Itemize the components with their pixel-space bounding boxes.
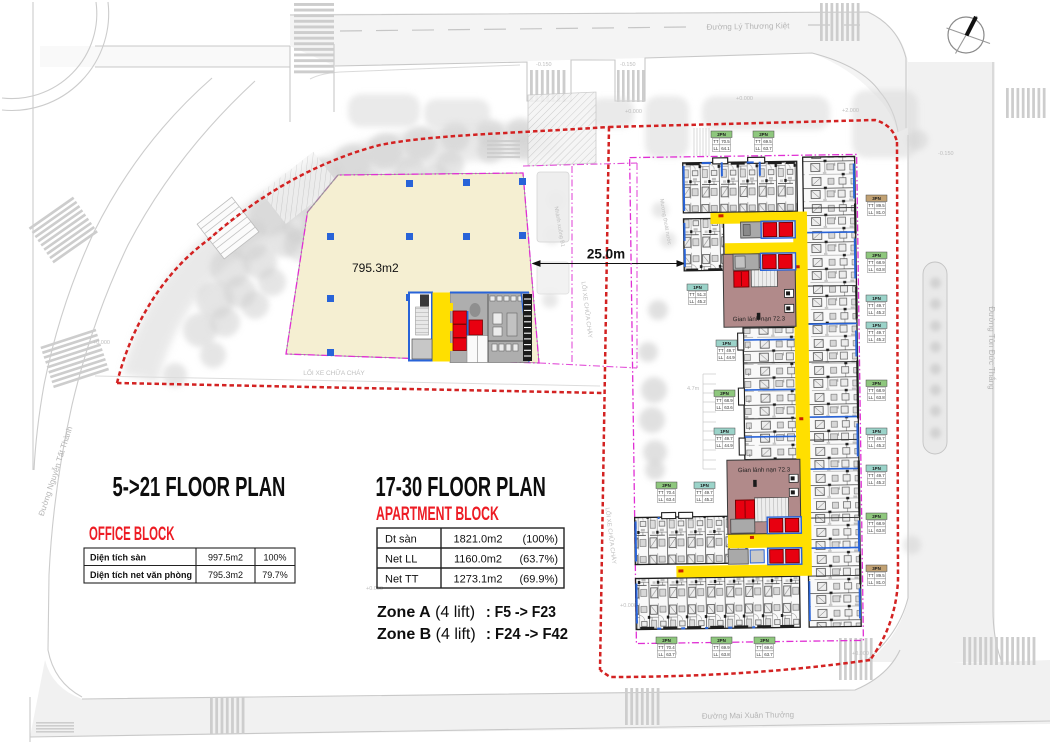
svg-text:LL: LL <box>716 405 721 410</box>
svg-text:70.5: 70.5 <box>721 139 730 144</box>
svg-text:45.2: 45.2 <box>704 497 713 502</box>
svg-text:63.8: 63.8 <box>876 395 885 400</box>
svg-text:63.7: 63.7 <box>764 652 773 657</box>
svg-text:1821.0m2: 1821.0m2 <box>454 534 503 546</box>
svg-text:44.9: 44.9 <box>724 443 733 448</box>
svg-text:TT: TT <box>868 203 874 208</box>
svg-text:3PN: 3PN <box>872 196 881 201</box>
svg-text:Diện tích sàn: Diện tích sàn <box>90 553 146 563</box>
svg-text:1PN: 1PN <box>700 483 709 488</box>
svg-text:1PN: 1PN <box>722 341 731 346</box>
svg-text:44.9: 44.9 <box>726 355 735 360</box>
svg-text:(63.7%): (63.7%) <box>519 554 558 566</box>
svg-text:LL: LL <box>868 267 873 272</box>
svg-text:(100%): (100%) <box>523 534 558 546</box>
svg-text:LL: LL <box>868 210 873 215</box>
svg-text:1PN: 1PN <box>720 429 729 434</box>
svg-text:TT: TT <box>718 348 724 353</box>
svg-text:64.1: 64.1 <box>721 146 730 151</box>
svg-text:68.9: 68.9 <box>876 521 885 526</box>
svg-text:49.7: 49.7 <box>704 490 713 495</box>
svg-text:1PN: 1PN <box>872 296 881 301</box>
svg-text:Zone B (4 lift): F24 -> F42: Zone B (4 lift): F24 -> F42 <box>377 626 568 643</box>
svg-text:89.5: 89.5 <box>876 203 885 208</box>
svg-text:68.9: 68.9 <box>876 388 885 393</box>
svg-text:17-30 FLOOR PLAN: 17-30 FLOOR PLAN <box>376 471 546 502</box>
svg-text:TT: TT <box>755 139 761 144</box>
svg-text:TT: TT <box>658 645 664 650</box>
svg-text:68.9: 68.9 <box>724 398 733 403</box>
svg-text:LL: LL <box>716 443 721 448</box>
svg-text:Gian lánh nạn 72.3: Gian lánh nạn 72.3 <box>733 315 786 323</box>
svg-text:1PN: 1PN <box>872 323 881 328</box>
svg-text:LL: LL <box>868 395 873 400</box>
svg-text:-0.150: -0.150 <box>536 62 552 68</box>
svg-text:2PN: 2PN <box>717 132 726 137</box>
svg-text:TT: TT <box>868 473 874 478</box>
svg-text:TT: TT <box>868 436 874 441</box>
svg-text:79.7%: 79.7% <box>262 570 288 580</box>
svg-text:49.7: 49.7 <box>876 436 885 441</box>
svg-text:TT: TT <box>868 303 874 308</box>
svg-text:997.5m2: 997.5m2 <box>208 553 243 563</box>
svg-text:TT: TT <box>716 398 722 403</box>
svg-text:5->21 FLOOR PLAN: 5->21 FLOOR PLAN <box>113 471 286 502</box>
svg-text:89.5: 89.5 <box>876 573 885 578</box>
svg-text:(69.9%): (69.9%) <box>519 574 558 586</box>
svg-text:63.8: 63.8 <box>876 267 885 272</box>
svg-text:69.5: 69.5 <box>763 139 772 144</box>
svg-text:TT: TT <box>713 645 719 650</box>
svg-text:51.3: 51.3 <box>697 292 706 297</box>
svg-text:45.2: 45.2 <box>876 310 885 315</box>
svg-text:OFFICE BLOCK: OFFICE BLOCK <box>89 524 175 545</box>
svg-text:+0.000: +0.000 <box>366 586 383 592</box>
svg-text:TT: TT <box>868 388 874 393</box>
svg-text:LL: LL <box>658 497 663 502</box>
svg-text:45.2: 45.2 <box>876 480 885 485</box>
svg-text:Zone A (4 lift): F5 -> F23: Zone A (4 lift): F5 -> F23 <box>377 604 556 621</box>
svg-text:+2.000: +2.000 <box>842 108 859 114</box>
svg-text:70.4: 70.4 <box>666 490 675 495</box>
svg-text:45.2: 45.2 <box>876 443 885 448</box>
svg-text:LL: LL <box>868 580 873 585</box>
svg-text:TT: TT <box>658 490 664 495</box>
svg-text:2PN: 2PN <box>872 381 881 386</box>
svg-text:49.7: 49.7 <box>876 303 885 308</box>
svg-text:70.4: 70.4 <box>666 645 675 650</box>
svg-text:LL: LL <box>868 337 873 342</box>
svg-text:TT: TT <box>756 645 762 650</box>
svg-text:Net LL: Net LL <box>385 554 417 566</box>
svg-text:Diện tích net văn phòng: Diện tích net văn phòng <box>90 570 192 580</box>
svg-text:45.2: 45.2 <box>697 299 706 304</box>
svg-text:63.8: 63.8 <box>721 652 730 657</box>
svg-text:2PN: 2PN <box>717 638 726 643</box>
svg-text:49.7: 49.7 <box>876 330 885 335</box>
svg-text:49.7: 49.7 <box>726 348 735 353</box>
svg-text:69.6: 69.6 <box>764 645 773 650</box>
svg-text:Gian lánh nạn 72.3: Gian lánh nạn 72.3 <box>738 466 791 474</box>
svg-text:+0.000: +0.000 <box>736 96 753 102</box>
svg-text:LL: LL <box>689 299 694 304</box>
svg-text:TT: TT <box>713 139 719 144</box>
svg-text:LL: LL <box>868 443 873 448</box>
svg-text:4.7m: 4.7m <box>687 386 700 392</box>
svg-text:63.6: 63.6 <box>724 405 733 410</box>
svg-text:LL: LL <box>868 528 873 533</box>
svg-text:LL: LL <box>755 146 760 151</box>
svg-text:TT: TT <box>689 292 695 297</box>
svg-text:Đường Tôn Đức Thắng: Đường Tôn Đức Thắng <box>987 306 996 389</box>
svg-text:LL: LL <box>713 652 718 657</box>
svg-text:Đường Mai Xuân Thưởng: Đường Mai Xuân Thưởng <box>702 710 794 721</box>
svg-text:LL: LL <box>713 146 718 151</box>
svg-text:TT: TT <box>868 260 874 265</box>
svg-text:49.7: 49.7 <box>876 473 885 478</box>
svg-text:68.9: 68.9 <box>876 260 885 265</box>
svg-text:Net TT: Net TT <box>385 574 419 586</box>
svg-text:63.4: 63.4 <box>666 497 675 502</box>
svg-text:+0.000: +0.000 <box>620 603 637 609</box>
svg-text:81.0: 81.0 <box>876 580 885 585</box>
svg-text:APARTMENT BLOCK: APARTMENT BLOCK <box>376 505 499 525</box>
svg-text:1PN: 1PN <box>693 285 702 290</box>
svg-text:63.8: 63.8 <box>876 528 885 533</box>
svg-text:LL: LL <box>658 652 663 657</box>
svg-text:2PN: 2PN <box>662 483 671 488</box>
svg-text:LL: LL <box>696 497 701 502</box>
svg-text:Dt sàn: Dt sàn <box>385 534 417 546</box>
svg-text:-0.150: -0.150 <box>620 62 636 68</box>
svg-text:-0.150: -0.150 <box>938 151 954 157</box>
svg-text:+0.000: +0.000 <box>93 340 110 346</box>
svg-text:81.0: 81.0 <box>876 210 885 215</box>
svg-text:2PN: 2PN <box>662 638 671 643</box>
svg-text:+0.000: +0.000 <box>852 651 869 657</box>
svg-text:2PN: 2PN <box>759 132 768 137</box>
svg-text:1273.1m2: 1273.1m2 <box>454 574 503 586</box>
svg-text:2PN: 2PN <box>720 391 729 396</box>
svg-text:795.3m2: 795.3m2 <box>208 570 243 580</box>
svg-text:45.2: 45.2 <box>876 337 885 342</box>
svg-text:1PN: 1PN <box>872 429 881 434</box>
svg-text:LL: LL <box>756 652 761 657</box>
svg-text:TT: TT <box>696 490 702 495</box>
svg-text:795.3m2: 795.3m2 <box>352 261 399 275</box>
svg-text:2PN: 2PN <box>872 514 881 519</box>
svg-text:LL: LL <box>718 355 723 360</box>
svg-text:25.0m: 25.0m <box>587 247 625 262</box>
svg-text:49.7: 49.7 <box>724 436 733 441</box>
svg-text:63.7: 63.7 <box>763 146 772 151</box>
svg-text:LL: LL <box>868 310 873 315</box>
svg-text:TT: TT <box>716 436 722 441</box>
svg-text:Đường Lý Thương Kiệt: Đường Lý Thương Kiệt <box>706 21 790 31</box>
svg-text:TT: TT <box>868 573 874 578</box>
svg-text:63.7: 63.7 <box>666 652 675 657</box>
svg-text:100%: 100% <box>263 553 286 563</box>
svg-text:69.9: 69.9 <box>721 645 730 650</box>
svg-text:3PN: 3PN <box>872 566 881 571</box>
svg-text:1160.0m2: 1160.0m2 <box>454 554 502 566</box>
svg-text:2PN: 2PN <box>760 638 769 643</box>
svg-text:1PN: 1PN <box>872 466 881 471</box>
svg-text:+0.000: +0.000 <box>625 109 642 115</box>
svg-text:2PN: 2PN <box>872 253 881 258</box>
svg-text:TT: TT <box>868 330 874 335</box>
svg-text:LL: LL <box>868 480 873 485</box>
svg-text:TT: TT <box>868 521 874 526</box>
